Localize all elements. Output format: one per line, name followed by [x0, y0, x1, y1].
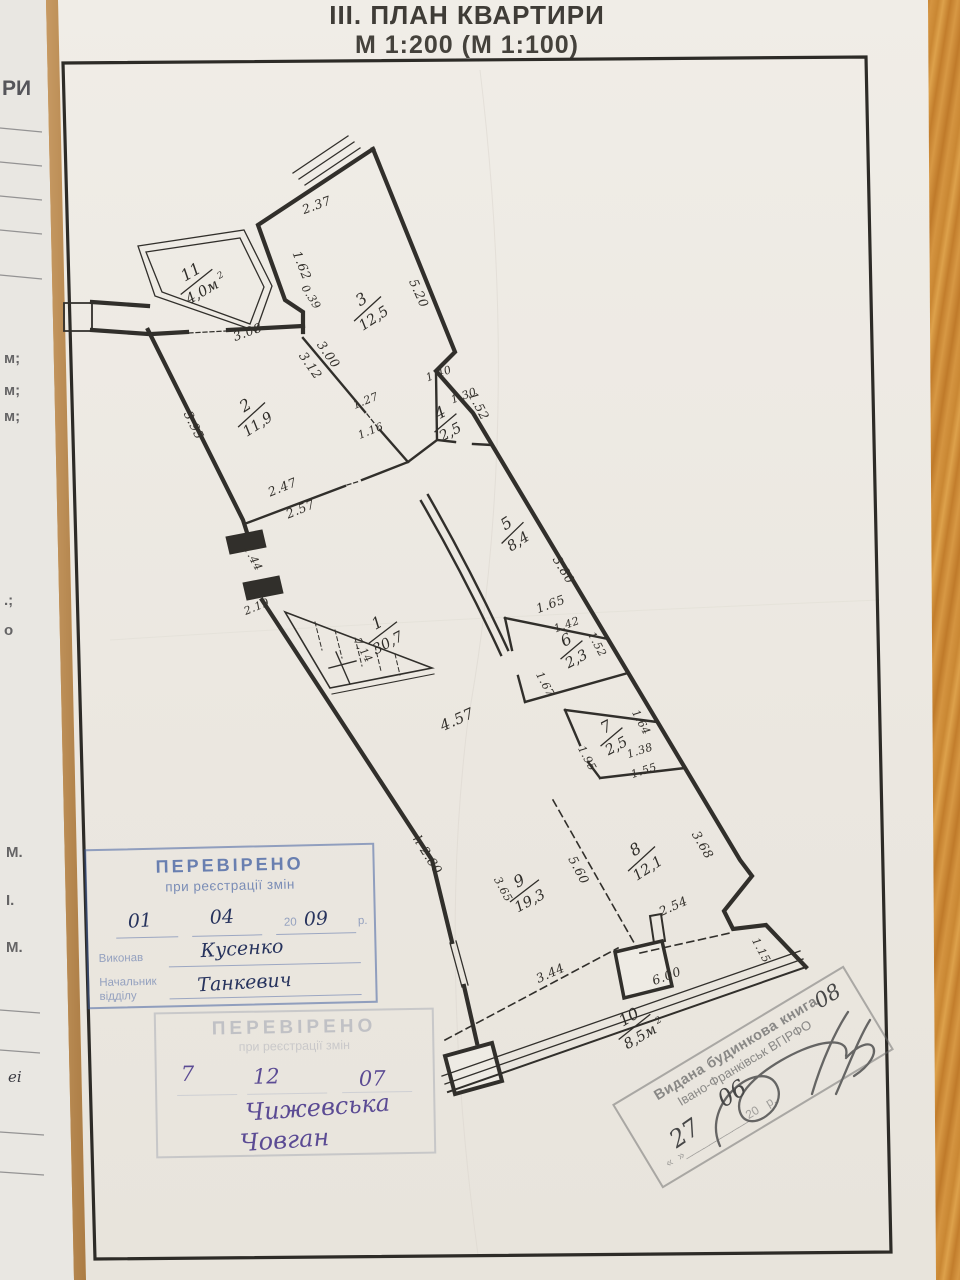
underpage-fragment: І. — [6, 892, 14, 909]
stamp1-chief-label1: Начальник — [99, 976, 157, 989]
underpage-fragment: м; — [4, 408, 20, 425]
stamp1-year-printed: 20 — [284, 917, 297, 929]
underpage-handwriting: еі — [8, 1068, 22, 1086]
stamp1-year: 09 — [303, 907, 328, 930]
underpage-fragment: м; — [4, 350, 20, 367]
stamp1-month: 04 — [209, 906, 234, 929]
stamp1-chief-label2: відділу — [99, 990, 136, 1003]
stamp1-executor-name: Кусенко — [200, 935, 284, 962]
page-title: ІІІ. ПЛАН КВАРТИРИ — [329, 0, 605, 30]
page-scale: М 1:200 (М 1:100) — [355, 31, 579, 59]
underpage-fragment: РИ — [2, 77, 31, 100]
stamp2-day: 7 — [181, 1062, 195, 1086]
stamp1-executor-label: Виконав — [99, 952, 144, 965]
stamp2-month: 12 — [253, 1064, 280, 1088]
verified-stamp-2: ПЕРЕВІРЕНО при реєстрації змін 7 12 07 Ч… — [154, 1008, 437, 1159]
underpage-fragment: М. — [6, 939, 23, 956]
underpage-fragment: м; — [4, 382, 20, 399]
stamp1-chief-name: Танкевич — [197, 969, 292, 996]
stamp1-year-suffix: р. — [358, 915, 368, 927]
stamp3-year-suffix: р. — [763, 1093, 779, 1110]
stamp3-year-printed: 20 — [743, 1103, 762, 1122]
stamp2-year: 07 — [359, 1066, 386, 1090]
underpage-fragment: .; — [4, 592, 13, 609]
underpage-fragment: М. — [6, 844, 23, 861]
underpage-fragment: о — [4, 622, 13, 639]
stamp2-surname2: Човган — [239, 1123, 330, 1157]
stamp1-day: 01 — [127, 909, 152, 932]
verified-stamp-1: ПЕРЕВІРЕНО при реєстрації змін 01 04 20 … — [84, 843, 378, 1010]
